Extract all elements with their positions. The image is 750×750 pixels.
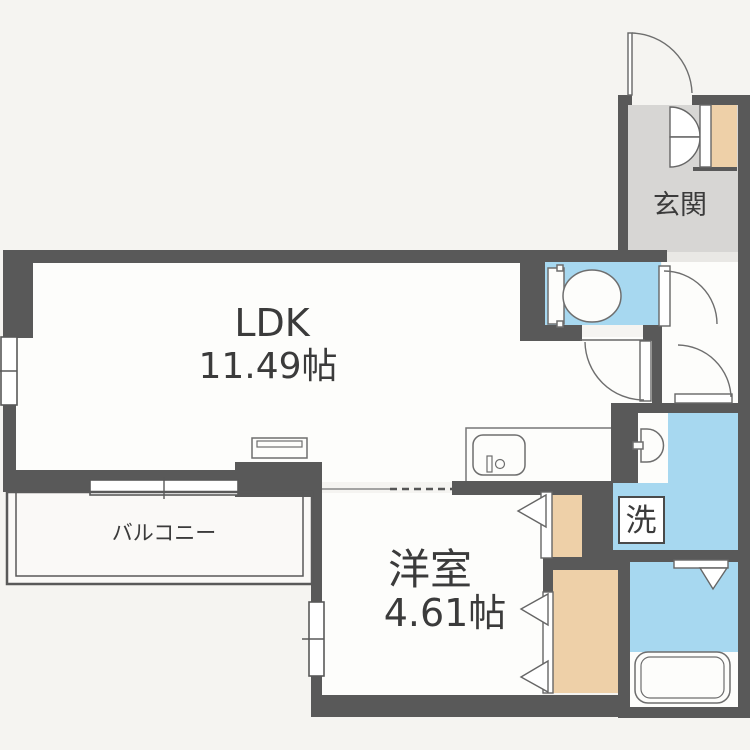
balcony-label: バルコニー — [112, 521, 217, 545]
toilet-door-leaf — [659, 266, 670, 326]
laundry-label: 洗 — [626, 503, 657, 539]
closet-lower — [552, 568, 618, 693]
washroom-door-leaf — [675, 394, 732, 403]
bedroom-area-label: 4.61帖 — [384, 591, 507, 635]
shoe-closet — [711, 105, 737, 167]
shoe-closet-door-bar — [700, 105, 711, 167]
entrance-label: 玄関 — [653, 190, 707, 221]
entrance-step — [662, 252, 738, 262]
ldk-area-label: 11.49帖 — [198, 346, 337, 387]
kitchen-sink-icon — [473, 435, 525, 475]
ldk-door-leaf — [640, 341, 651, 401]
bedroom-label: 洋室 — [388, 545, 472, 594]
front-door-leaf — [628, 33, 632, 95]
hall-floor — [662, 262, 738, 403]
ldk-door-area-floor — [545, 337, 652, 403]
bathroom-door-bar — [674, 560, 728, 568]
closet-upper — [552, 493, 582, 558]
ldk-label: LDK — [234, 301, 310, 345]
floors — [0, 0, 750, 750]
bathtub-icon — [635, 652, 730, 703]
stove-icon — [252, 438, 307, 458]
floorplan-canvas: LDK 11.49帖 洋室 4.61帖 バルコニー 玄関 洗 — [0, 0, 750, 750]
